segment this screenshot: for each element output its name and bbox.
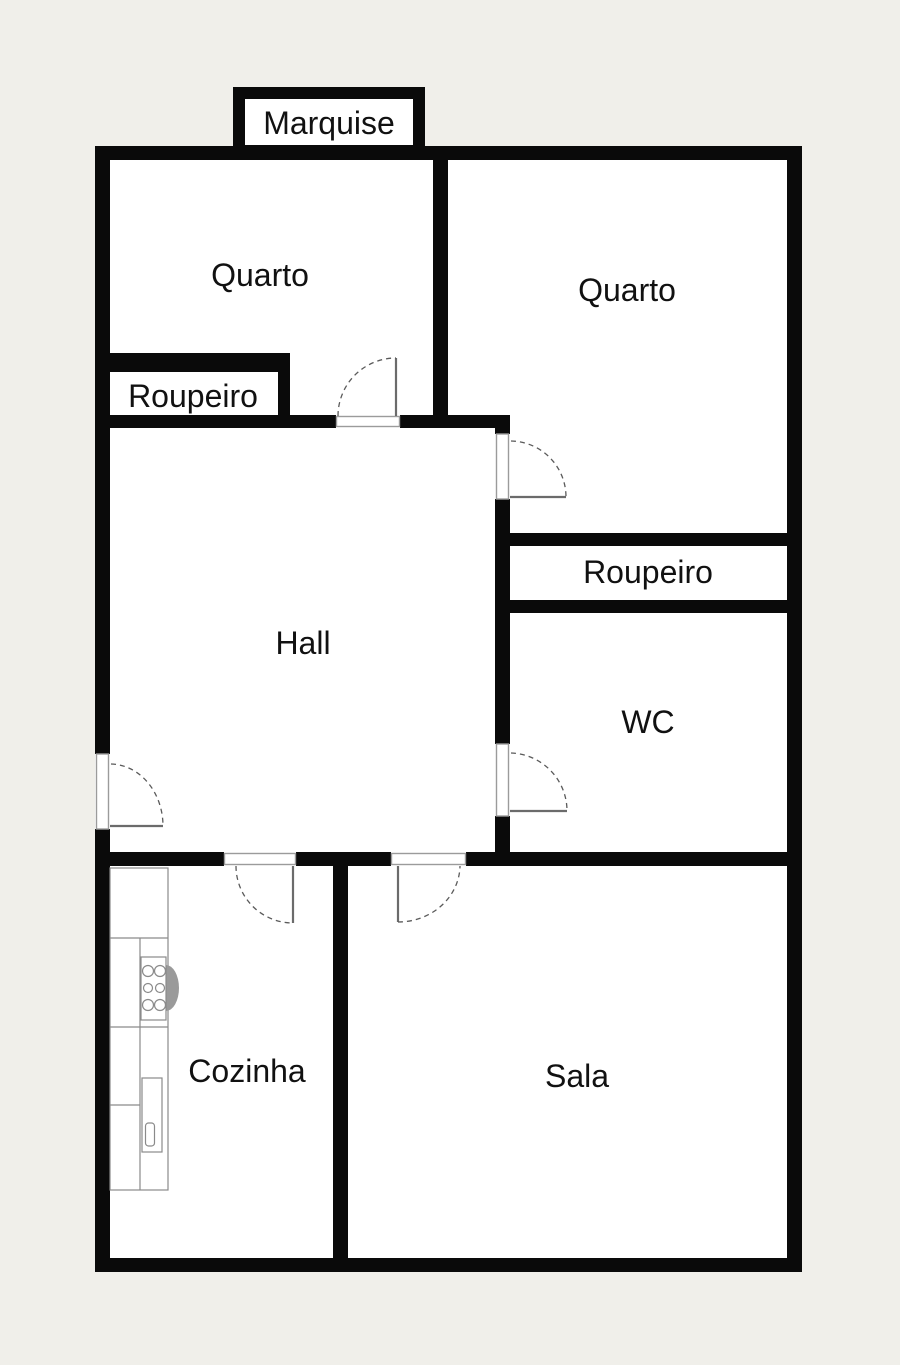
threshold-entrance-door [97,754,109,829]
wall-cozinha-sala-divider [333,852,348,1272]
threshold-sala-door [392,854,466,865]
label-hall: Hall [275,625,330,661]
threshold-wc-door [497,744,509,816]
wall-outer-top [95,146,802,160]
wall-roupeiro-left-top [95,353,290,372]
wall-roupeiro-right-bottom [495,600,787,613]
wall-quartos-divider [433,146,448,421]
floor-plan-canvas: Marquise Quarto Quarto Roupeiro Roupeiro… [0,0,900,1365]
label-wc: WC [621,704,674,740]
threshold-cozinha-door [225,854,296,865]
wall-hall-bottom-a [95,852,224,866]
building-floor [95,146,802,1272]
wall-hall-bottom-c [466,852,787,866]
label-marquise: Marquise [263,105,395,141]
wall-outer-bottom [95,1258,802,1272]
wall-outer-left-upper [95,146,110,754]
wall-outer-left-lower [95,829,110,1272]
wall-roupeiro-right-top [495,533,787,546]
threshold-quarto-left-door [337,417,400,427]
threshold-quarto-right-door [497,434,509,499]
label-quarto-left: Quarto [211,257,309,293]
label-cozinha: Cozinha [188,1053,306,1089]
label-roupeiro-right: Roupeiro [583,554,713,590]
label-roupeiro-left: Roupeiro [128,378,258,414]
wall-outer-right [787,146,802,1272]
label-sala: Sala [545,1058,609,1094]
label-quarto-right: Quarto [578,272,676,308]
wall-hall-top-left [95,415,336,428]
wall-hall-top-right [400,415,510,428]
wall-hall-right-a [495,415,510,434]
floor-plan-drawing: Marquise Quarto Quarto Roupeiro Roupeiro… [0,0,900,1365]
